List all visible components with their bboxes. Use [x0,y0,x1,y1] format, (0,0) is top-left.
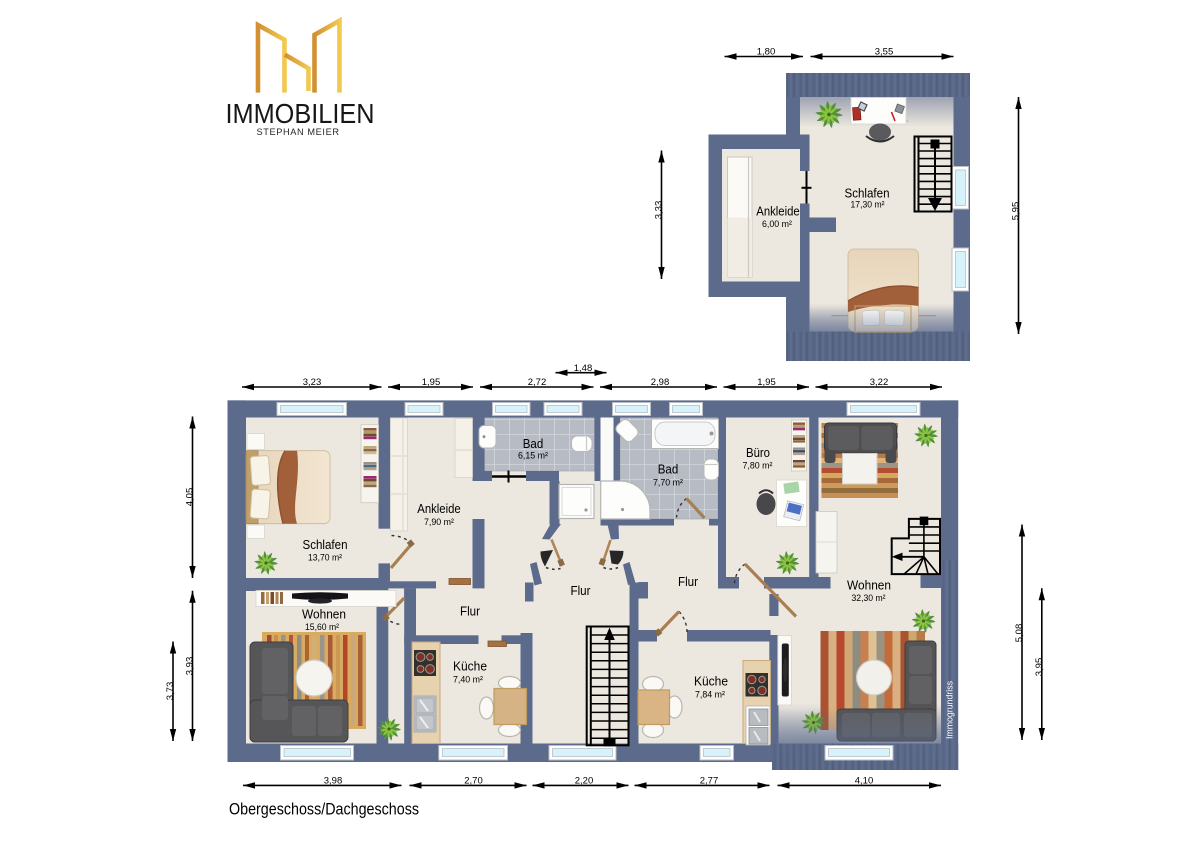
svg-text:3,23: 3,23 [303,377,322,388]
svg-text:15,60 m²: 15,60 m² [305,622,339,633]
svg-text:1,80: 1,80 [757,47,776,58]
svg-text:3,98: 3,98 [324,776,343,787]
svg-text:1,95: 1,95 [757,377,776,388]
svg-text:7,84 m²: 7,84 m² [695,690,725,701]
svg-text:3,55: 3,55 [875,47,894,58]
svg-text:7,90 m²: 7,90 m² [424,517,454,528]
svg-text:3,22: 3,22 [870,377,889,388]
svg-text:5,08: 5,08 [1014,624,1025,643]
svg-text:Schlafen: Schlafen [845,186,890,201]
svg-text:2,77: 2,77 [700,776,719,787]
svg-text:Ankleide: Ankleide [756,204,800,219]
svg-text:6,00 m²: 6,00 m² [762,219,792,230]
svg-text:7,70 m²: 7,70 m² [653,478,683,489]
svg-text:6,15 m²: 6,15 m² [518,451,548,462]
svg-text:Flur: Flur [460,604,481,619]
svg-text:Büro: Büro [746,445,770,460]
svg-text:2,20: 2,20 [575,776,594,787]
svg-text:3,95: 3,95 [1034,658,1045,677]
svg-text:5,95: 5,95 [1011,202,1022,221]
svg-text:Wohnen: Wohnen [302,607,346,622]
svg-text:Flur: Flur [678,574,699,589]
svg-text:IMMOBILIEN: IMMOBILIEN [226,98,375,129]
svg-text:4,10: 4,10 [855,776,874,787]
svg-text:1,95: 1,95 [422,377,441,388]
svg-text:3,73: 3,73 [165,682,176,701]
svg-text:3,33: 3,33 [654,201,665,220]
svg-text:Wohnen: Wohnen [847,578,891,593]
svg-text:Schlafen: Schlafen [303,537,348,552]
svg-text:2,72: 2,72 [528,377,547,388]
svg-text:13,70 m²: 13,70 m² [308,552,342,563]
svg-text:2,70: 2,70 [464,776,483,787]
svg-text:17,30 m²: 17,30 m² [851,200,885,211]
svg-text:Immogrundriss: Immogrundriss [945,681,955,739]
svg-text:4,05: 4,05 [185,488,196,507]
svg-text:7,40 m²: 7,40 m² [453,675,483,686]
svg-text:Küche: Küche [694,674,728,689]
svg-text:STEPHAN MEIER: STEPHAN MEIER [257,127,341,137]
svg-text:Bad: Bad [523,436,544,451]
svg-text:7,80 m²: 7,80 m² [743,461,773,472]
svg-text:2,98: 2,98 [651,377,670,388]
svg-text:Obergeschoss/Dachgeschoss: Obergeschoss/Dachgeschoss [229,801,419,819]
svg-text:Flur: Flur [571,583,592,598]
svg-text:Küche: Küche [453,659,487,674]
svg-text:Bad: Bad [658,462,679,477]
svg-text:1,48: 1,48 [574,363,593,374]
svg-text:Ankleide: Ankleide [417,501,461,516]
svg-text:3,93: 3,93 [185,657,196,676]
svg-text:32,30 m²: 32,30 m² [852,593,886,604]
